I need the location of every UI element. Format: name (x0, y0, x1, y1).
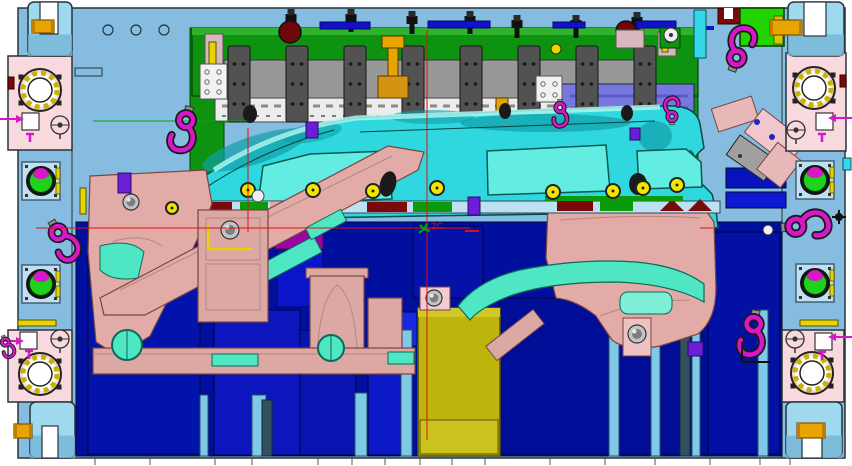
blue-rail-bar (636, 21, 676, 28)
purple-tag (688, 342, 703, 356)
separator-dark (262, 400, 272, 456)
maroon-clamp-wheel (279, 21, 301, 43)
blue-rail-bar (320, 22, 370, 29)
beltline-green (413, 202, 452, 212)
rotary-clamp (796, 264, 834, 302)
datum-square (22, 113, 39, 130)
beltline-maroon (367, 202, 407, 212)
bracket-screw (738, 154, 742, 158)
rotary-clamp (796, 161, 834, 199)
lifting-clevis (786, 402, 842, 458)
separator-column (692, 318, 700, 456)
datum-square (816, 113, 833, 130)
cyan-bump (843, 158, 851, 170)
rocker-mint (212, 354, 258, 366)
clamp-blob (499, 103, 511, 119)
panel-shading (638, 121, 672, 151)
clamp-blob (243, 105, 257, 123)
yellow-locator (166, 202, 178, 214)
blue-rail-bar (428, 21, 490, 28)
pink-riser (616, 30, 644, 48)
purple-tag (306, 122, 318, 138)
plate-tab (75, 68, 102, 76)
yellow-rail-bar (18, 320, 56, 326)
separator-column (200, 395, 208, 456)
yellow-locator (636, 181, 650, 195)
centerline-label: 2C (431, 222, 443, 232)
white-locator (252, 190, 264, 202)
olive-block-band (420, 420, 498, 454)
circuit-plate (200, 64, 227, 99)
navy-bar (726, 192, 786, 208)
yellow-locator (430, 181, 444, 195)
yellow-locator (546, 185, 560, 199)
navy-block (708, 232, 780, 454)
ball-locator (123, 194, 139, 210)
ball-locator (628, 325, 646, 343)
cad-viewport: 2C (0, 0, 852, 466)
unit-dot (769, 134, 775, 140)
corner-block (8, 56, 72, 150)
yellow-locator (606, 184, 620, 198)
rocker-mint (388, 352, 414, 364)
maroon-u-slot (724, 8, 733, 19)
purple-tag (630, 128, 640, 140)
separator-dark (680, 320, 690, 456)
gold-clamp-head (382, 36, 404, 48)
sensor-dot-center (669, 33, 673, 37)
rotary-clamp (22, 162, 60, 200)
separator-column (355, 393, 367, 456)
gold-clamp-arm (388, 48, 398, 78)
yellow-locator (306, 183, 320, 197)
fender-mint-patch (100, 243, 144, 279)
beltline-maroon (557, 201, 593, 211)
quarter-mint-pad (620, 292, 672, 314)
fixture-assembly-drawing: 2C (0, 0, 852, 466)
yellow-rail-bar (800, 320, 838, 326)
datum-square (815, 333, 832, 350)
gold-clamp-foot (378, 76, 408, 98)
bottom-tick (95, 458, 790, 465)
yellow-sensor (551, 44, 561, 54)
ball-locator (221, 221, 239, 239)
yellow-locator (670, 178, 684, 192)
clamp-finger (460, 46, 482, 122)
rotary-clamp (22, 265, 60, 303)
cyan-post (694, 10, 706, 58)
purple-tag (468, 197, 480, 215)
clamp-finger (344, 46, 366, 122)
lifting-clevis (28, 2, 72, 56)
blue-rail-bar (553, 22, 585, 28)
clamp-blob (621, 105, 633, 121)
clamp-finger (286, 46, 308, 122)
yellow-locator (366, 184, 380, 198)
circuit-plate (536, 76, 562, 102)
unit-dot (754, 119, 760, 125)
yellow-post (80, 188, 86, 214)
maroon-tab (840, 75, 846, 87)
beltline-green (600, 201, 633, 211)
purple-tag (118, 173, 131, 193)
ball-locator (426, 290, 442, 306)
hook-pin-dot (763, 225, 773, 235)
maroon-tab (8, 77, 14, 89)
